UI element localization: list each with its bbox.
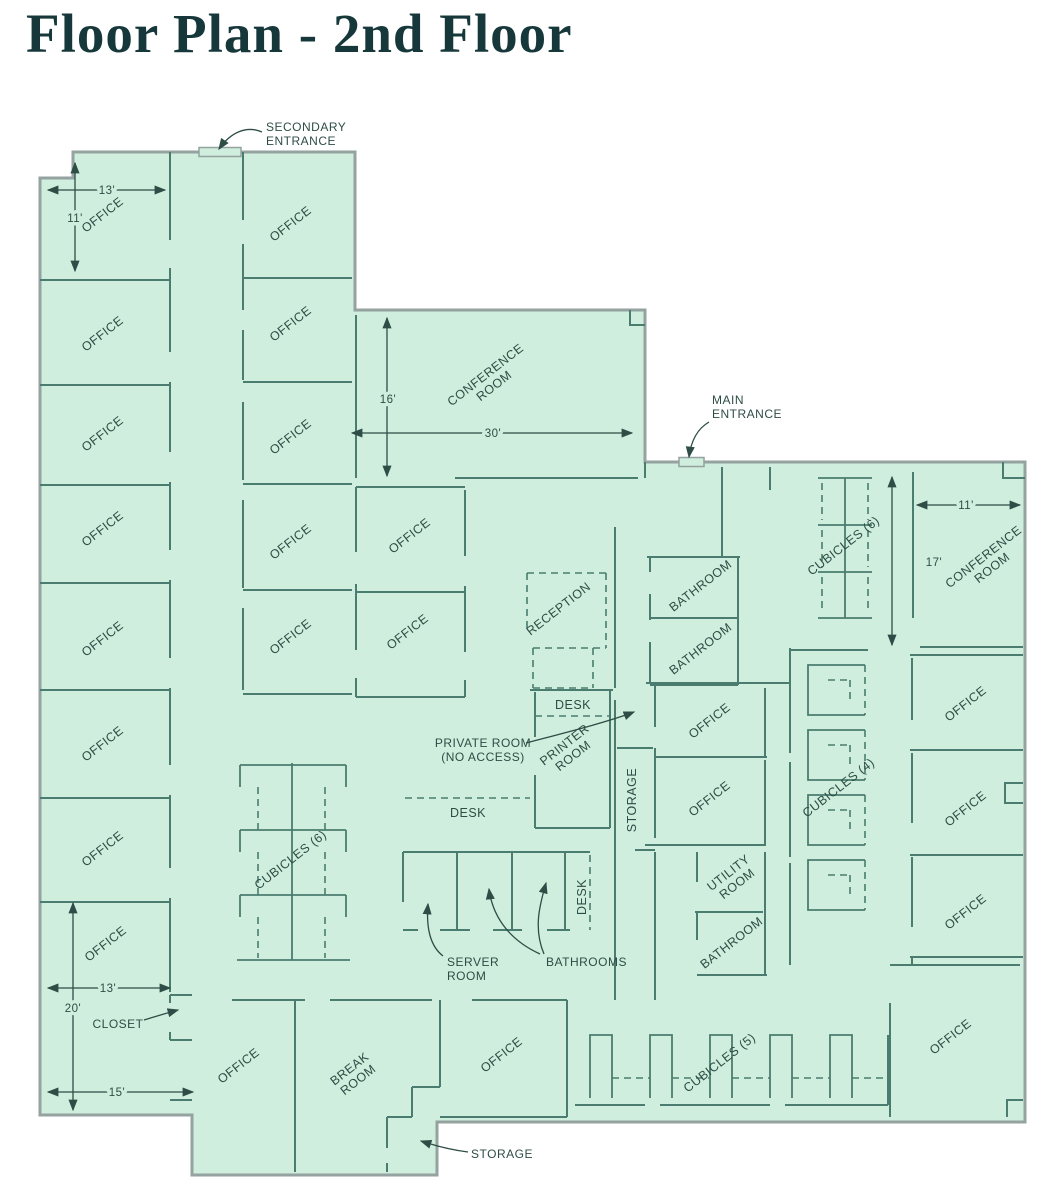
leader-main-entrance [689,422,709,457]
dim-13ft-bottom: 13' [100,983,117,995]
note-main-entrance: MAINENTRANCE [712,393,782,421]
floor-plan-page: Floor Plan - 2nd Floor [0,0,1054,1200]
dim-11ft-left: 11' [67,213,83,225]
dim-11ft-right: 11' [958,500,974,512]
label-desk: DESK [450,806,486,820]
dim-16ft: 16' [380,394,397,406]
floor-plan-drawing: OFFICEOFFICEOFFICEOFFICEOFFICEOFFICEOFFI… [0,0,1054,1200]
dim-17ft: 17' [926,557,943,569]
main-entrance-door [679,458,704,467]
note-private-room: PRIVATE ROOM(NO ACCESS) [435,736,531,764]
leader-secondary-entrance [219,129,262,149]
label-desk: DESK [555,698,591,712]
dim-30ft: 30' [485,428,502,440]
note-storage: STORAGE [471,1147,533,1161]
label-desk: DESK [575,879,589,915]
dim-15ft: 15' [109,1087,126,1099]
label-storage: STORAGE [625,768,639,832]
note-secondary-entrance: SECONDARYENTRANCE [266,120,346,148]
secondary-entrance-door [199,148,241,157]
dim-20ft: 20' [65,1003,82,1015]
dim-13ft-top: 13' [99,185,116,197]
note-bathrooms: BATHROOMS [546,955,627,969]
note-closet: CLOSET [92,1017,143,1031]
